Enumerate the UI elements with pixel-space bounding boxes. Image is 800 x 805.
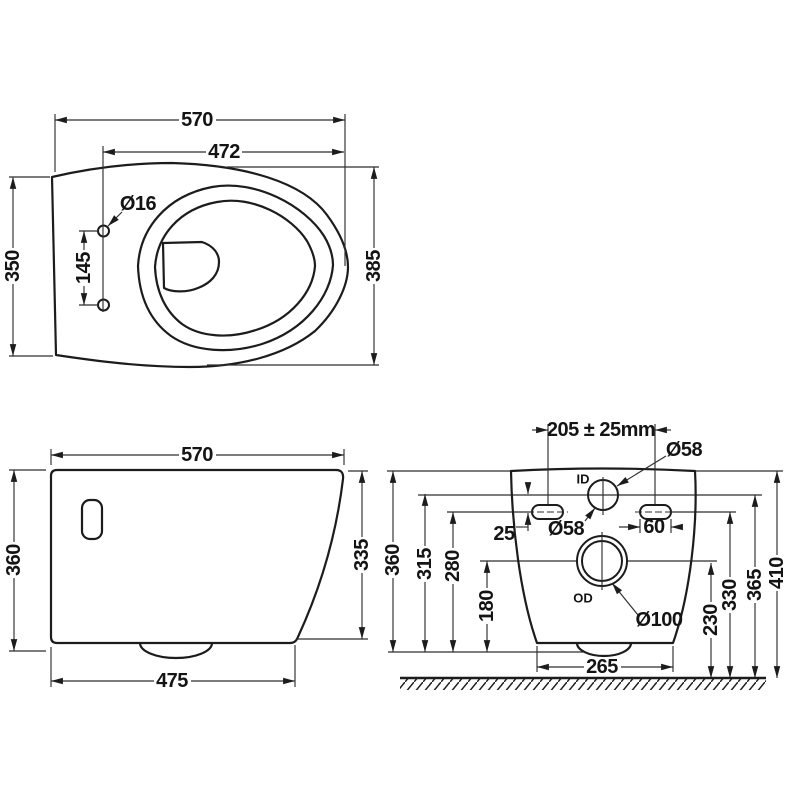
rear-view: 205 ± 25mm Ø58 ID Ø58 25 60 OD Ø100 265 …	[382, 419, 788, 690]
dim-top-rear-depth: 350	[2, 250, 24, 282]
body-outline	[51, 470, 343, 643]
dim-height-280: 280	[442, 550, 464, 582]
drawing-canvas: 570 472 350 385 145 Ø16	[0, 0, 800, 800]
label-inlet-diameter: Ø58	[666, 439, 703, 461]
dim-height-360: 360	[382, 544, 404, 576]
top-view: 570 472 350 385 145 Ø16	[2, 109, 385, 367]
label-outlet-port: OD	[573, 591, 593, 606]
dim-height-330: 330	[719, 579, 741, 611]
label-inlet-diameter-2: Ø58	[548, 518, 585, 540]
label-outlet-diameter: Ø100	[636, 609, 683, 631]
seat-outline	[52, 163, 348, 367]
dim-fixing-centres: 205 ± 25mm	[547, 419, 655, 441]
seat-ring-inner	[155, 201, 315, 336]
side-view: 570 360 335 475	[3, 444, 373, 692]
dim-side-bottom-length: 475	[156, 670, 188, 692]
top-view-dimension-lines	[9, 114, 379, 365]
label-inlet-port: ID	[577, 472, 590, 487]
technical-drawing: 570 472 350 385 145 Ø16	[0, 0, 800, 800]
dim-top-hole-spacing: 145	[73, 252, 95, 284]
dim-side-overall-height: 360	[3, 544, 25, 576]
dim-top-hinge-to-front: 472	[208, 141, 240, 163]
pan-trap-bulge	[577, 643, 631, 656]
label-hole-diameter: Ø16	[120, 193, 157, 215]
dim-base-width: 265	[586, 656, 618, 678]
dim-slot-width: 60	[643, 516, 665, 538]
floor-hatching	[400, 679, 766, 690]
dim-height-410: 410	[766, 557, 788, 589]
dim-top-overall-width: 570	[181, 109, 213, 131]
trap-bulge	[140, 643, 212, 658]
side-view-dimension-lines	[9, 449, 368, 687]
dim-top-bowl-depth: 385	[363, 250, 385, 282]
water-opening	[163, 242, 219, 291]
dim-side-front-height: 335	[351, 539, 373, 571]
side-fixing-slot	[82, 500, 102, 539]
dim-height-365: 365	[744, 569, 766, 601]
dim-height-180: 180	[476, 590, 498, 622]
dim-slot-offset: 25	[493, 523, 515, 545]
dim-side-overall-length: 570	[181, 444, 213, 466]
dim-height-315: 315	[414, 548, 436, 580]
seat-ring-outer	[138, 186, 333, 351]
